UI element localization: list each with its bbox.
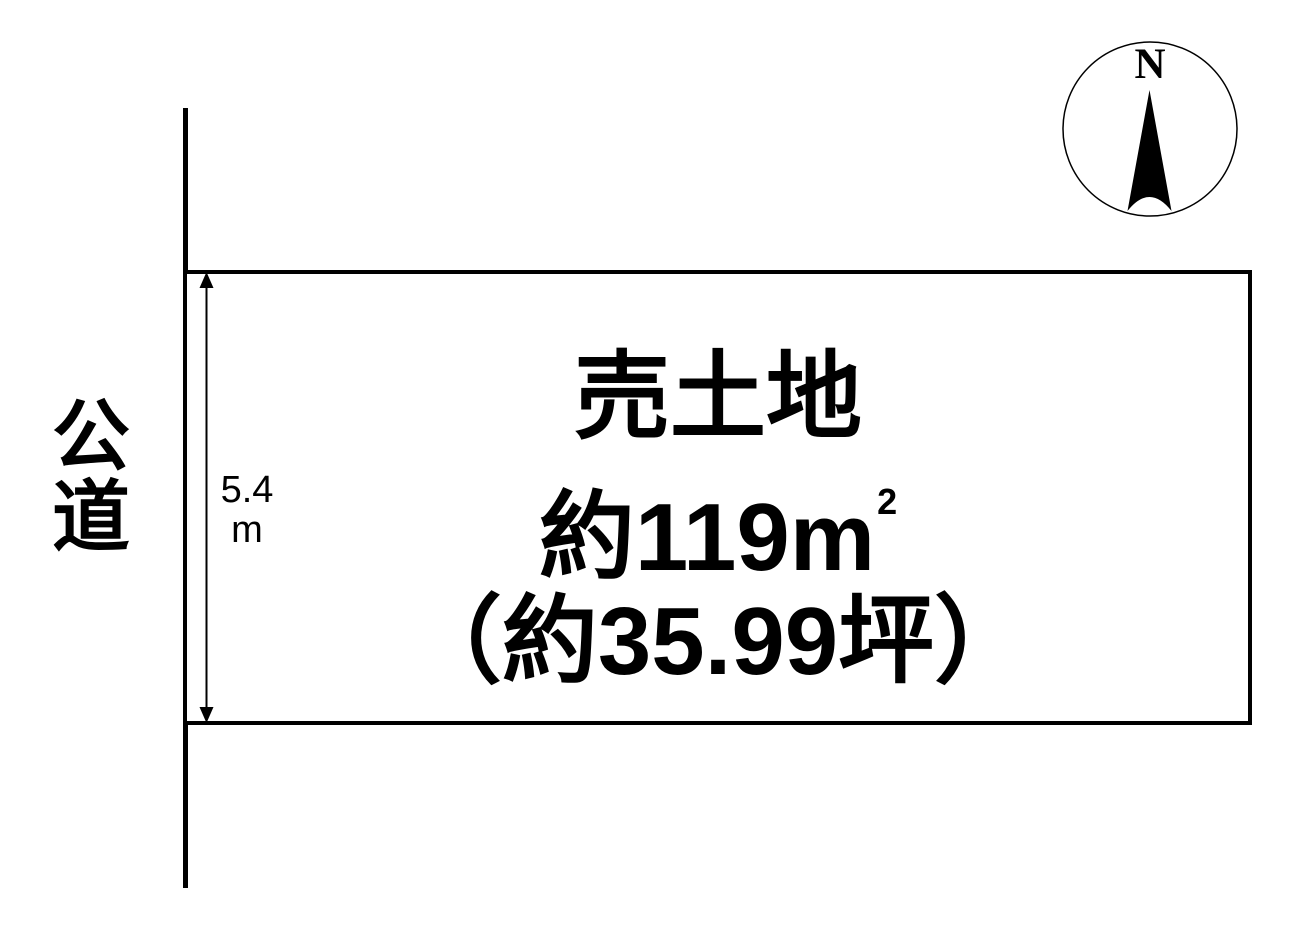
dimension-unit: m — [214, 510, 280, 550]
compass-north-icon: N — [1061, 40, 1239, 218]
dimension-label: 5.4 m — [214, 470, 280, 550]
plot-area-main: 約119m — [539, 484, 875, 591]
plot-area-sqm: 約119m2 — [185, 450, 1251, 590]
plot-area-tsubo: （約35.99坪） — [185, 590, 1251, 694]
land-plot-diagram: 公道 売土地 約119m2 （約35.99坪） 5.4 m N — [0, 0, 1311, 930]
plot-area-superscript: 2 — [877, 481, 897, 522]
plot-area-tsubo-text: （約35.99坪） — [406, 588, 1030, 695]
road-label: 公道 — [50, 396, 132, 558]
plot-title: 売土地 — [185, 346, 1251, 450]
compass-north-label: N — [1134, 41, 1165, 88]
plot-title-text: 売土地 — [574, 344, 862, 451]
plot-label: 売土地 約119m2 （約35.99坪） — [185, 346, 1251, 694]
dimension-value: 5.4 — [214, 470, 280, 510]
